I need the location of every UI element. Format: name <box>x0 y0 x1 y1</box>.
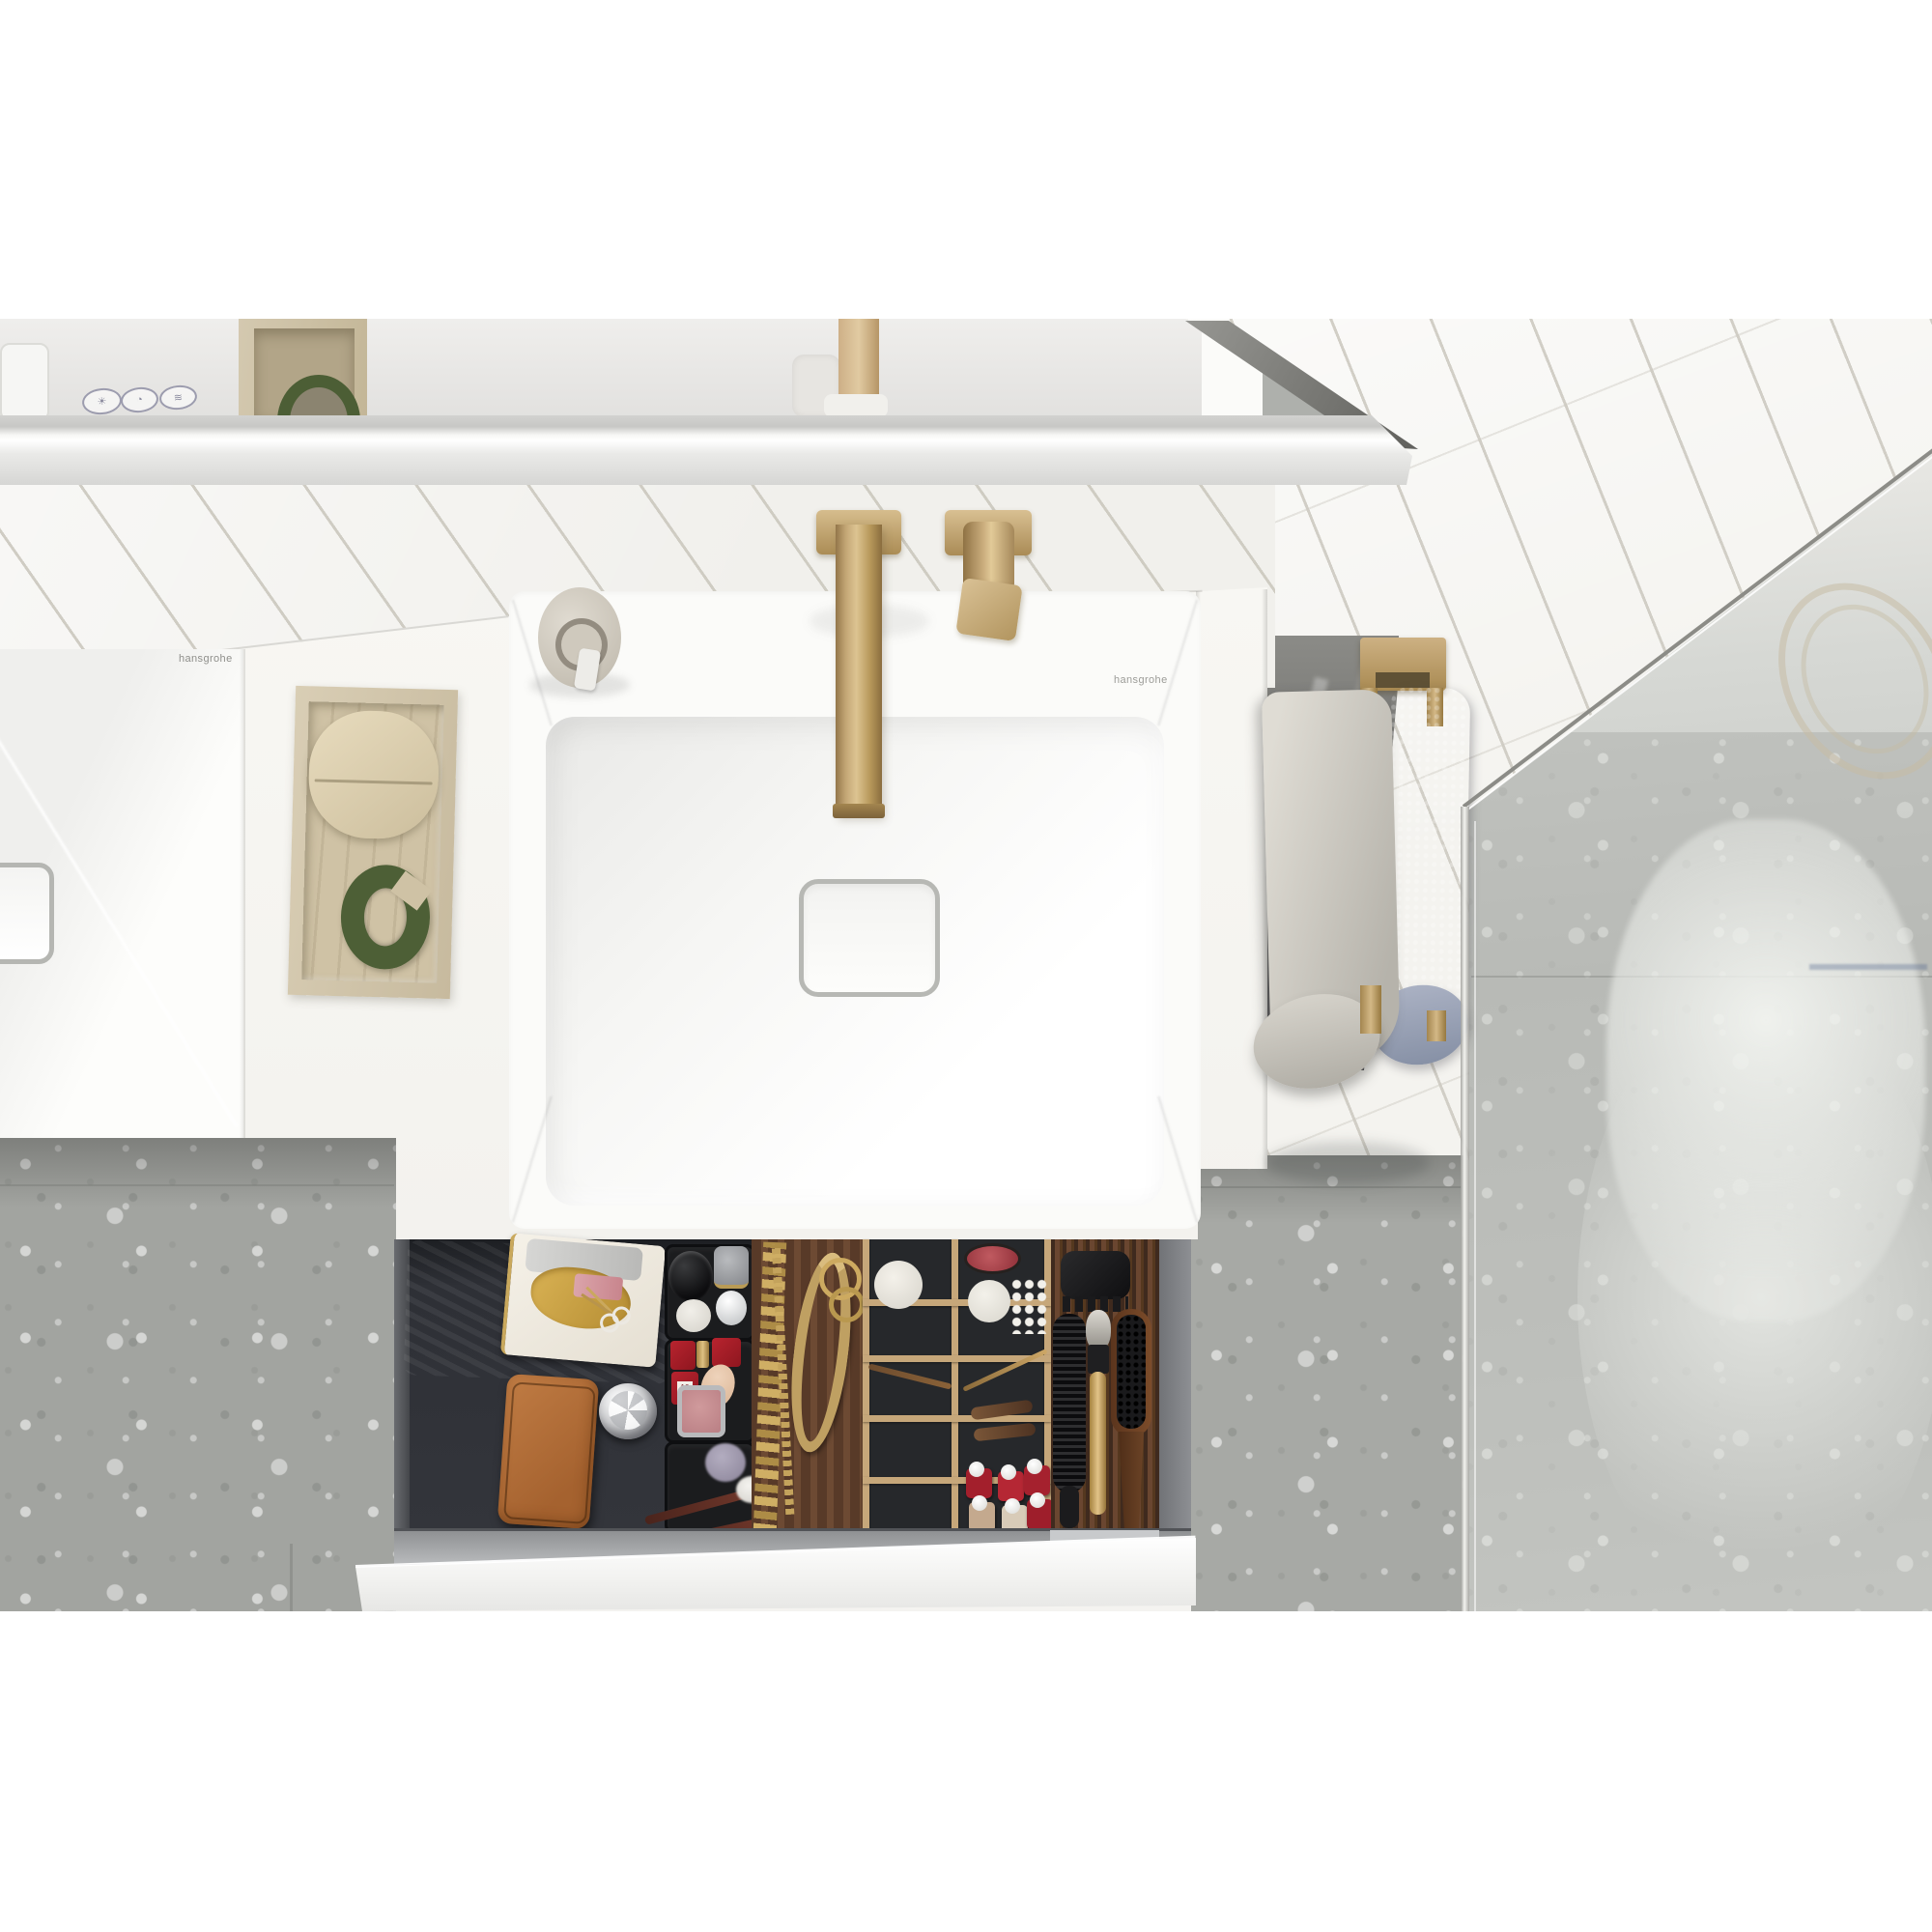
hanging-shower-towel <box>1606 819 1925 1321</box>
glass-screen-edge <box>1461 807 1469 1611</box>
blush-compact <box>677 1385 725 1437</box>
bathroom-photo: ☀ ◔ ≋ hansgrohe <box>0 319 1932 1611</box>
bath-ball <box>968 1280 1010 1322</box>
page: { "scene": { "type": "photograph", "subj… <box>0 0 1932 1932</box>
ceramic-tray <box>500 1233 666 1368</box>
nail-polish <box>966 1468 992 1498</box>
brand-logo-right: hansgrohe <box>1114 674 1168 686</box>
cream-leather-pouch <box>307 709 440 839</box>
faucet-spout-tip <box>833 804 885 818</box>
grid-frame <box>863 1239 869 1577</box>
red-compact <box>964 1243 1021 1274</box>
floor-right-joint <box>1191 1186 1462 1188</box>
cognac-leather-case <box>497 1374 600 1529</box>
gold-ring <box>829 1287 865 1322</box>
floor-right <box>1191 1155 1463 1611</box>
case-zipper <box>503 1381 596 1524</box>
round-hair-brush <box>1053 1314 1086 1492</box>
gold-lipstick-tube <box>696 1341 709 1368</box>
paddle-brush-bristles <box>1117 1315 1146 1429</box>
floor-left <box>0 1138 396 1611</box>
crystal-ball <box>599 1383 657 1439</box>
scissors-handle <box>611 1306 632 1326</box>
red-lipstick-box <box>670 1341 696 1370</box>
black-cosmetic-jar <box>668 1251 713 1301</box>
cotton-puff <box>676 1299 711 1332</box>
glass-screen-reflection <box>1474 821 1476 1611</box>
silver-cosmetic-jar <box>716 1291 747 1325</box>
faucet-lever-handle <box>955 578 1022 641</box>
crystal-facets <box>609 1391 647 1430</box>
nail-polish <box>1027 1499 1053 1529</box>
brush-bristles <box>705 1443 746 1482</box>
left-basin-drain <box>0 863 54 964</box>
gold-brush-handle <box>1090 1372 1106 1515</box>
mirror-reflected-panel <box>0 343 49 417</box>
bath-ball <box>874 1261 923 1309</box>
dim-control-icon: ◔ <box>120 385 160 414</box>
red-lipstick-box <box>712 1338 741 1367</box>
floor-left-joint-vertical <box>290 1544 293 1611</box>
glass-cosmetic-jar <box>714 1246 749 1289</box>
cotton-swabs <box>1010 1278 1047 1334</box>
drawer-right-wall <box>1157 1239 1191 1577</box>
brand-logo-left: hansgrohe <box>179 653 233 665</box>
towel-blue-stripe <box>1809 964 1927 970</box>
hair-claw-clip <box>1061 1251 1130 1299</box>
floor-left-shadow <box>0 1138 396 1207</box>
nail-polish <box>998 1471 1024 1501</box>
towel-rail-slot <box>1376 672 1430 688</box>
faucet-spout <box>836 525 882 816</box>
reflected-faucet-escutcheon <box>824 394 888 417</box>
round-brush-handle <box>1060 1486 1079 1528</box>
towel-shadow <box>1265 1142 1430 1184</box>
floor-left-joint <box>0 1184 394 1186</box>
main-basin-drain <box>799 879 940 997</box>
mirror: ☀ ◔ ≋ <box>0 319 1372 417</box>
mirror-shelf <box>0 415 1415 485</box>
mirror-heat-control-icon: ≋ <box>158 384 198 412</box>
nail-polish <box>1024 1465 1050 1495</box>
pouch-zipper <box>315 779 433 784</box>
grid-frame <box>863 1415 1051 1422</box>
gold-brush-ferrule <box>1088 1345 1109 1374</box>
grid-frame <box>952 1239 958 1577</box>
towel-bar-end <box>1427 1010 1446 1041</box>
left-basin-edge <box>240 649 245 1142</box>
towel-bar-end <box>1360 985 1381 1034</box>
travertine-tray <box>288 686 458 999</box>
light-control-icon: ☀ <box>81 386 124 416</box>
